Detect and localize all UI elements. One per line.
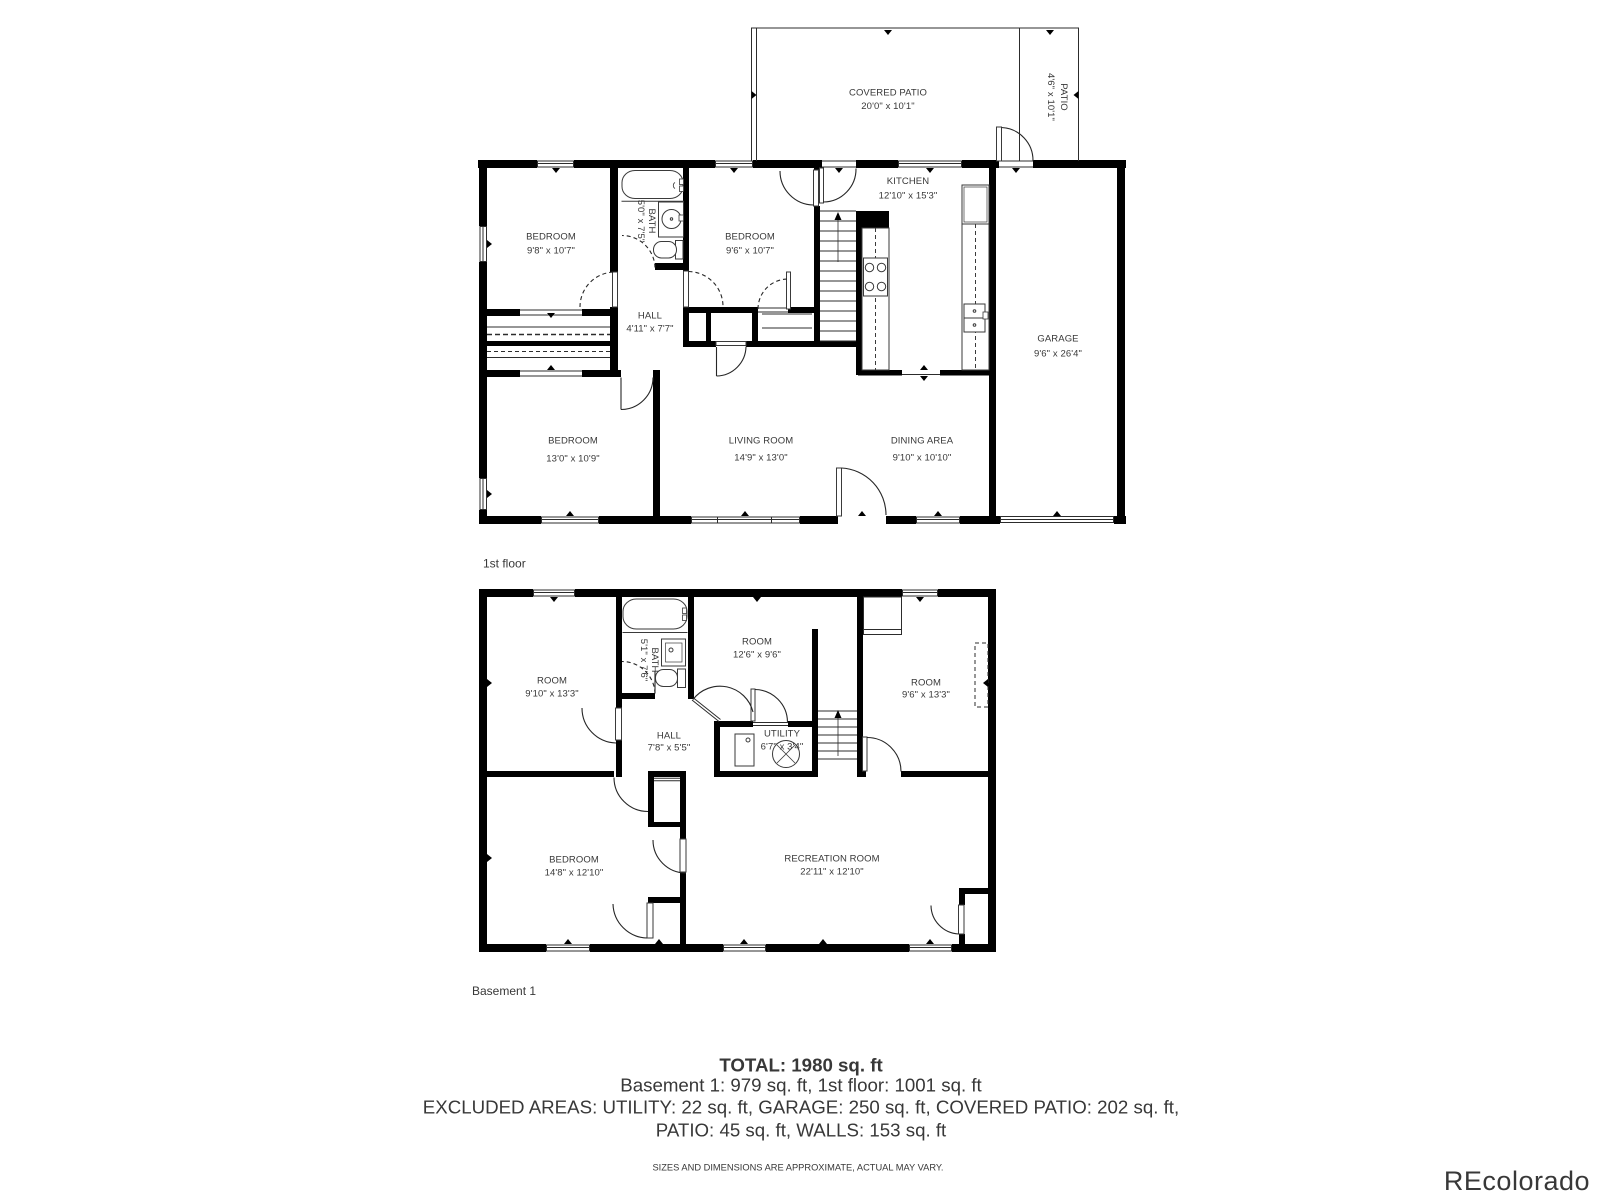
svg-text:GARAGE: GARAGE	[1037, 334, 1078, 345]
svg-text:ROOM: ROOM	[911, 678, 941, 689]
svg-text:Basement 1: 979 sq. ft, 1st fl: Basement 1: 979 sq. ft, 1st floor: 1001 …	[620, 1075, 982, 1096]
svg-text:9'10" x 13'3": 9'10" x 13'3"	[525, 689, 578, 700]
svg-text:DINING AREA: DINING AREA	[891, 436, 954, 447]
svg-text:22'11" x 12'10": 22'11" x 12'10"	[800, 867, 863, 878]
svg-text:BEDROOM: BEDROOM	[548, 436, 598, 447]
svg-text:12'10" x 15'3": 12'10" x 15'3"	[879, 191, 938, 202]
svg-text:9'6" x 10'7": 9'6" x 10'7"	[726, 246, 774, 257]
svg-text:PATIO: 45 sq. ft, WALLS: 153 s: PATIO: 45 sq. ft, WALLS: 153 sq. ft	[656, 1120, 947, 1141]
svg-text:9'6" x 13'3": 9'6" x 13'3"	[902, 690, 950, 701]
svg-text:BATH: BATH	[649, 647, 660, 672]
svg-text:COVERED PATIO: COVERED PATIO	[849, 88, 927, 99]
svg-text:5'1" x 7'6": 5'1" x 7'6"	[638, 639, 649, 682]
svg-text:9'10" x 10'10": 9'10" x 10'10"	[893, 453, 952, 464]
svg-text:20'0" x 10'1": 20'0" x 10'1"	[861, 101, 914, 112]
svg-text:4'6" x 10'1": 4'6" x 10'1"	[1045, 73, 1056, 121]
svg-text:BATH: BATH	[646, 208, 657, 233]
svg-text:14'8" x 12'10": 14'8" x 12'10"	[545, 868, 604, 879]
svg-text:9'8" x 10'7": 9'8" x 10'7"	[527, 246, 575, 257]
svg-text:9'6" x 26'4": 9'6" x 26'4"	[1034, 349, 1082, 360]
svg-text:BEDROOM: BEDROOM	[549, 855, 599, 866]
svg-text:1st floor: 1st floor	[483, 557, 526, 571]
svg-text:6'7" x 3'4": 6'7" x 3'4"	[761, 742, 804, 753]
svg-text:HALL: HALL	[638, 311, 662, 322]
svg-text:LIVING ROOM: LIVING ROOM	[729, 436, 793, 447]
svg-text:PATIO: PATIO	[1058, 83, 1069, 111]
svg-text:EXCLUDED AREAS: UTILITY: 22 sq: EXCLUDED AREAS: UTILITY: 22 sq. ft, GARA…	[423, 1097, 1179, 1118]
svg-text:TOTAL: 1980 sq. ft: TOTAL: 1980 sq. ft	[719, 1055, 882, 1076]
svg-text:ROOM: ROOM	[742, 637, 772, 648]
svg-text:HALL: HALL	[657, 731, 681, 742]
svg-text:SIZES AND DIMENSIONS ARE APPRO: SIZES AND DIMENSIONS ARE APPROXIMATE, AC…	[652, 1163, 943, 1173]
svg-text:12'6" x 9'6": 12'6" x 9'6"	[733, 650, 781, 661]
svg-text:KITCHEN: KITCHEN	[887, 176, 929, 187]
svg-text:BEDROOM: BEDROOM	[526, 232, 576, 243]
svg-text:BEDROOM: BEDROOM	[725, 232, 775, 243]
svg-text:Basement 1: Basement 1	[472, 984, 536, 998]
svg-text:5'0" x 7'5": 5'0" x 7'5"	[635, 200, 646, 243]
svg-text:REcolorado: REcolorado	[1444, 1166, 1590, 1196]
svg-text:7'8" x 5'5": 7'8" x 5'5"	[648, 743, 691, 754]
svg-text:14'9" x 13'0": 14'9" x 13'0"	[734, 453, 787, 464]
svg-text:13'0" x 10'9": 13'0" x 10'9"	[546, 454, 599, 465]
svg-text:ROOM: ROOM	[537, 676, 567, 687]
svg-text:UTILITY: UTILITY	[764, 729, 801, 740]
svg-text:RECREATION ROOM: RECREATION ROOM	[784, 854, 879, 865]
svg-text:4'11" x 7'7": 4'11" x 7'7"	[626, 324, 673, 335]
